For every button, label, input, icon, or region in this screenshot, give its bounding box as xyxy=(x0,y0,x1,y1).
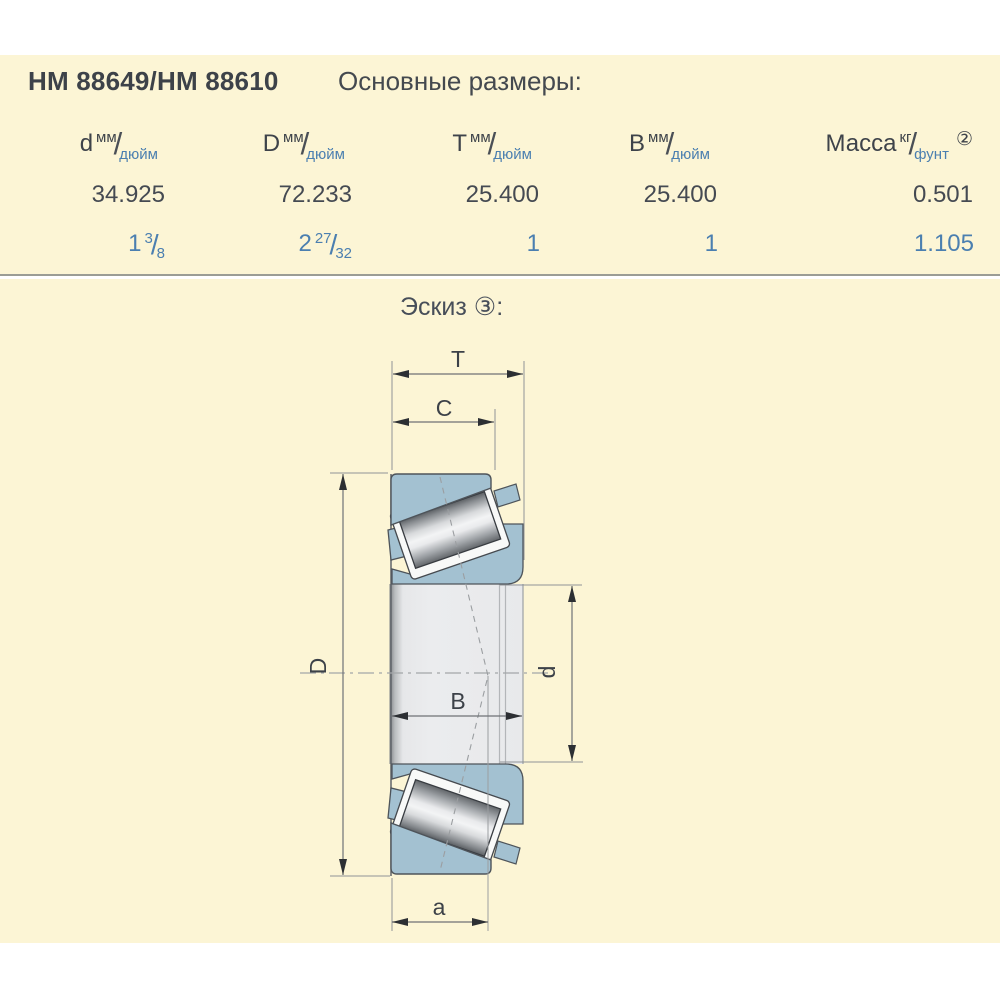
value-d-inch: 13/8 xyxy=(0,229,165,262)
value-d-mm: 34.925 xyxy=(0,181,165,209)
bore-surface xyxy=(390,584,524,764)
value-D-mm: 72.233 xyxy=(165,181,352,209)
sketch-title: Эскиз ③: xyxy=(400,292,503,322)
cage-lip xyxy=(494,484,520,507)
value-B-inch: 1 xyxy=(539,229,717,262)
page-title: HM 88649/HM 88610 xyxy=(28,66,279,97)
dim-label-B: B xyxy=(450,688,465,714)
col-header-d: dмм/дюйм xyxy=(0,126,165,163)
table-row-mm: 34.925 72.233 25.400 25.400 0.501 xyxy=(0,181,973,209)
col-header-D: Dмм/дюйм xyxy=(165,126,352,163)
bearing-upper-half xyxy=(388,474,523,584)
dim-label-C: C xyxy=(436,395,453,421)
value-T-inch: 1 xyxy=(352,229,539,262)
dim-label-a: a xyxy=(433,894,446,920)
col-header-T: Tмм/дюйм xyxy=(352,126,539,163)
dim-label-T: T xyxy=(451,346,465,372)
section-divider xyxy=(0,274,1000,276)
page-subtitle: Основные размеры: xyxy=(338,66,582,97)
dim-label-d: d xyxy=(534,666,560,679)
bearing-lower-half xyxy=(388,764,523,874)
bearing-cross-section-drawing: T C B a D d xyxy=(0,330,1000,943)
col-header-mass: Массакг/фунт② xyxy=(717,126,973,163)
col-header-B: Bмм/дюйм xyxy=(539,126,717,163)
footnote-2-icon: ② xyxy=(956,129,973,150)
value-B-mm: 25.400 xyxy=(539,181,717,209)
value-D-inch: 227/32 xyxy=(165,229,352,262)
value-mass-lb: 1.105 xyxy=(717,229,973,262)
table-header-row: dмм/дюйм Dмм/дюйм Tмм/дюйм Bмм/дюйм Масс… xyxy=(0,126,973,163)
dim-label-D: D xyxy=(305,658,331,675)
table-row-inch: 13/8 227/32 1 1 1.105 xyxy=(0,229,973,262)
value-mass-kg: 0.501 xyxy=(717,181,973,209)
value-T-mm: 25.400 xyxy=(352,181,539,209)
